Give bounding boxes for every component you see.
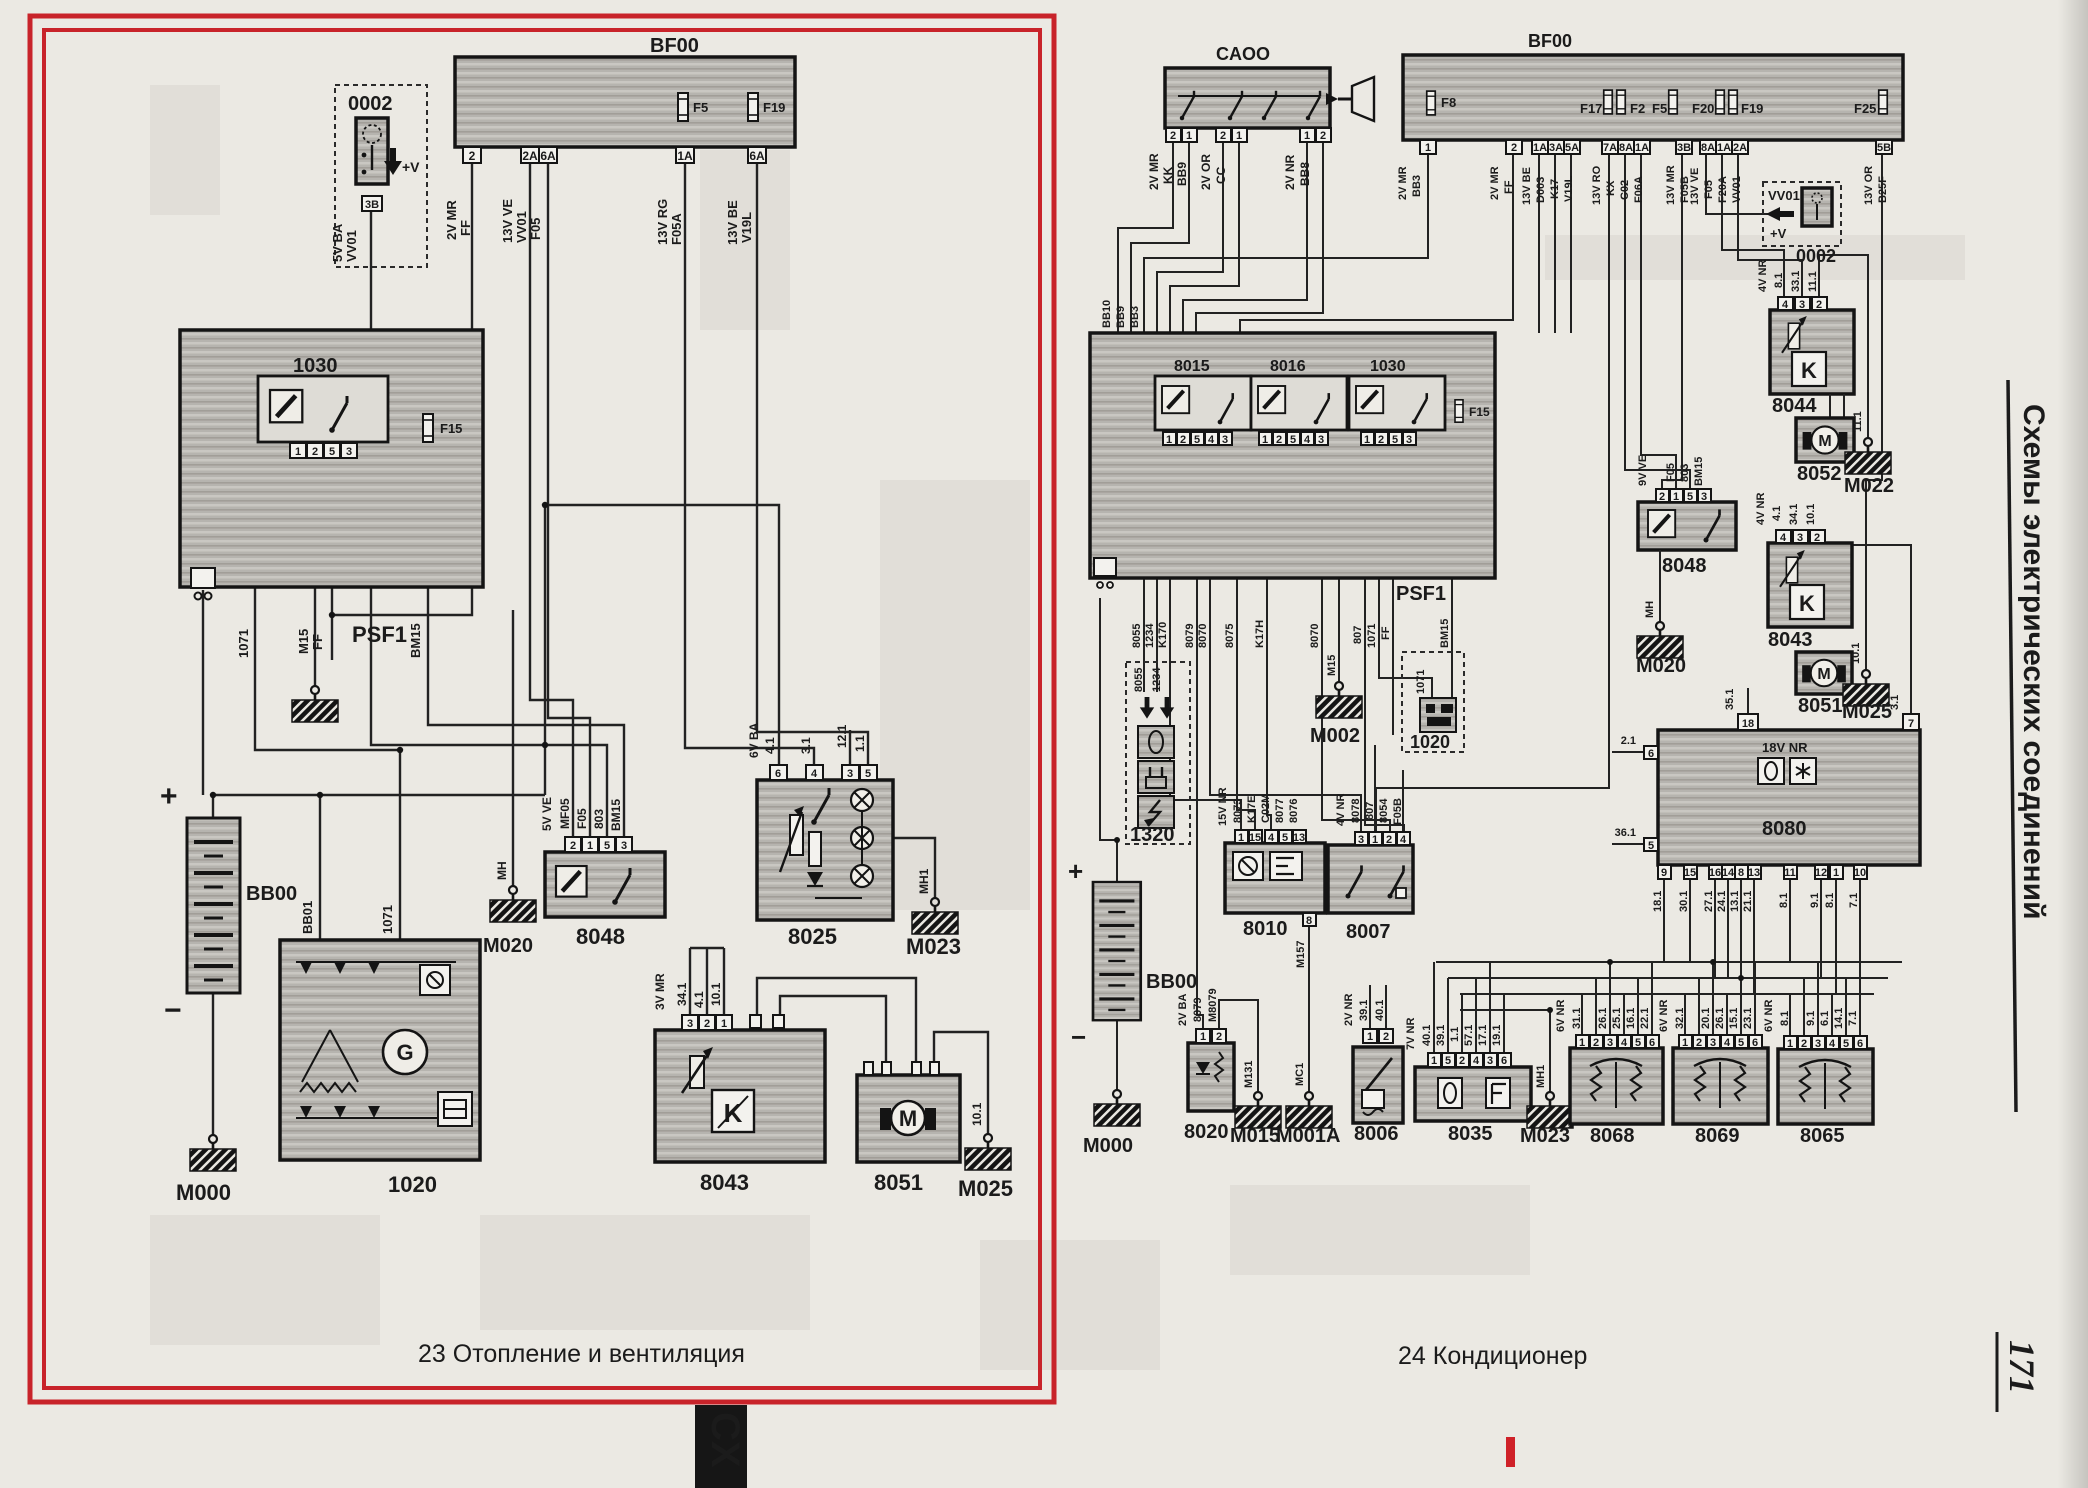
- wire-label: FF: [1503, 180, 1515, 194]
- unit-id-label: 8044: [1772, 395, 1817, 417]
- wire-label: 8076: [1288, 799, 1300, 823]
- unit-id-label: 8006: [1354, 1123, 1399, 1145]
- red-index-mark: [1506, 1437, 1515, 1467]
- wire-label: 34.1: [675, 982, 689, 1006]
- wire-label: MC1: [1294, 1063, 1306, 1086]
- ground-label: M023: [1520, 1125, 1570, 1147]
- unit-8051-motor: M 8051: [857, 1062, 960, 1195]
- pin-label: 5: [1635, 1037, 1641, 1049]
- generator-letter: G: [396, 1040, 413, 1065]
- wire-label: 1071: [1415, 670, 1427, 694]
- wire-label: 8077: [1274, 799, 1286, 823]
- wire-label: 34.1: [1788, 504, 1800, 525]
- wire-label: 8073: [1232, 799, 1244, 823]
- wire-label: 8078: [1350, 799, 1362, 823]
- wire-label: 8055: [1133, 668, 1145, 692]
- pin-label: 2: [1593, 1037, 1599, 1049]
- pin-label: 1: [1186, 130, 1192, 142]
- wire-label: 36.1: [1615, 827, 1636, 839]
- pin-label: 1: [587, 840, 593, 852]
- ground-label: M020: [483, 935, 533, 957]
- wire-label: 4V NR: [1335, 794, 1347, 826]
- unit-8006: 1 2 2V NR 39.1 40.1 8006: [1343, 994, 1403, 1145]
- wire-label: BB3: [1411, 175, 1423, 197]
- wire-label: 13V VE: [500, 199, 515, 243]
- wire-label: BB3: [1129, 306, 1141, 328]
- wire-label: 807: [1364, 802, 1376, 820]
- wire-label: MH1: [1535, 1065, 1547, 1088]
- wire-label: CC: [1214, 166, 1228, 184]
- wire-label: 2V NR: [1343, 994, 1355, 1026]
- pin-label: 1: [1166, 434, 1172, 446]
- page-edge-shadow: [2058, 0, 2088, 1488]
- ground-label: M000: [176, 1180, 231, 1205]
- unit-id-label: BF00: [1528, 31, 1572, 51]
- wire-label: 8070: [1309, 624, 1321, 648]
- wire-label: M8079: [1207, 988, 1219, 1022]
- pin-label: 4: [1829, 1038, 1836, 1050]
- pin-label: 1: [1367, 1031, 1373, 1043]
- unit-id-label: 8020: [1184, 1121, 1229, 1143]
- wire-label: K17H: [1254, 620, 1266, 648]
- wire-label: 8054: [1378, 798, 1390, 823]
- wire-label: 3V MR: [653, 973, 667, 1010]
- wire-label: 25.1: [1611, 1008, 1623, 1029]
- unit-1020-right: 1071 1020: [1402, 652, 1464, 752]
- pin-label: 1: [1579, 1037, 1585, 1049]
- battery-plus: +: [1068, 856, 1083, 886]
- wire-label: BB10: [1101, 300, 1113, 328]
- wire-label: V19L: [1563, 175, 1575, 202]
- pin-label: 5: [1648, 840, 1654, 852]
- wire-label: K17E: [1246, 795, 1258, 823]
- wire-label: 2V BA: [1177, 994, 1189, 1026]
- pin-label: 1: [1372, 834, 1378, 846]
- wire-label: 1234: [1144, 623, 1156, 648]
- fuse-label: F5: [1652, 101, 1667, 116]
- pin-label: 7: [1908, 718, 1914, 730]
- unit-8007: 3 1 2 4 4V NR 8078 807 8054 F05B 8007: [1328, 794, 1413, 943]
- pin-label: 5: [1194, 434, 1200, 446]
- fuse-label: F15: [1469, 405, 1490, 419]
- wire-label: 6V NR: [1555, 1000, 1567, 1032]
- wire-label: B25F: [1877, 176, 1889, 203]
- pin-label: 1: [295, 446, 301, 458]
- fuse-label: F15: [440, 421, 462, 436]
- wire-label: C02M: [1260, 794, 1272, 823]
- ground-label: M020: [1636, 655, 1686, 677]
- unit-8035: 1 5 2 4 3 6 7V NR 40.1 39.1 1.1 57.1 17.…: [1405, 1018, 1531, 1145]
- pin-label: 6: [1857, 1038, 1863, 1050]
- wire-label: 7.1: [1848, 893, 1860, 908]
- pin-label: 1A: [1717, 142, 1731, 154]
- pin-label: 7A: [1603, 142, 1617, 154]
- pin-label: 2: [1220, 130, 1226, 142]
- wire-label: 2V MR: [1489, 166, 1501, 200]
- pin-label: 4: [1780, 532, 1787, 544]
- wire-label: 6V BA: [747, 722, 761, 758]
- pin-label: 2: [1696, 1037, 1702, 1049]
- sidebar-title: Схемы электрических соединений: [2017, 404, 2050, 920]
- wire-label: 10.1: [1850, 643, 1862, 664]
- cx-tab: CX: [695, 1405, 747, 1488]
- pin-label: 1: [1262, 434, 1268, 446]
- wire-label: 2V OR: [1199, 154, 1213, 190]
- pin-label: 2: [1459, 1055, 1465, 1067]
- pin-label: 2: [1386, 834, 1392, 846]
- ground-label: M002: [1310, 725, 1360, 747]
- ground-m023-right-symbol: [1527, 1092, 1573, 1128]
- wire-label: MH: [495, 861, 509, 880]
- pin-label: 6: [775, 768, 781, 780]
- ground-m15-symbol: [292, 686, 338, 722]
- wire-label: M157: [1295, 940, 1307, 968]
- wire-label: BB01: [300, 901, 315, 934]
- wire-label: 13V MR: [1665, 165, 1677, 205]
- caption-left: 23 Отопление и вентиляция: [418, 1340, 745, 1368]
- battery-minus: −: [164, 994, 182, 1027]
- pin-label: 3: [1799, 299, 1805, 311]
- pin-label: 3: [1815, 1038, 1821, 1050]
- wire-label: F06A: [1633, 176, 1645, 203]
- ground-label: M001A: [1276, 1125, 1340, 1147]
- wire-label: 35.1: [1724, 689, 1736, 710]
- ground-m001a-symbol: [1286, 1092, 1332, 1128]
- wire-label: 23.1: [1742, 1008, 1754, 1029]
- pin-label: 1: [721, 1018, 727, 1030]
- fuse-label: F20: [1692, 101, 1714, 116]
- wire-label: 6V NR: [1763, 1000, 1775, 1032]
- wire-label: 31.1: [1571, 1008, 1583, 1029]
- wire-label: 15.1: [1728, 1008, 1740, 1029]
- wire-label: 13V BE: [1521, 167, 1533, 205]
- wire-label: 2V MR: [1147, 153, 1161, 190]
- pin-label: 1: [1673, 491, 1679, 503]
- unit-1020-alternator: G 1020 BB01 1071: [280, 901, 480, 1197]
- pin-label: 2: [1659, 491, 1665, 503]
- ground-label: M023: [906, 934, 961, 959]
- wire-label: VV01: [514, 211, 529, 243]
- unit-id-label: 8068: [1590, 1125, 1635, 1147]
- wire-label: FF: [310, 634, 325, 650]
- wire-label: K17: [1549, 179, 1561, 199]
- wire-label: M15: [1326, 655, 1338, 676]
- unit-id-label: 8007: [1346, 921, 1391, 943]
- pin-label: 13: [1293, 832, 1305, 844]
- wire-label: 4.1: [763, 737, 777, 754]
- unit-id-label: 8052: [1797, 463, 1842, 485]
- unit-psf1-right: BB10 BB9 BB3 8015 1 2 5 4 3 8016 1 2 5 4…: [1090, 300, 1495, 676]
- pin-label: 4: [1208, 434, 1215, 446]
- pin-label: 1: [1304, 130, 1310, 142]
- wire-label: 2V MR: [444, 200, 459, 240]
- wire-label: 20.1: [1700, 1008, 1712, 1029]
- pin-label: 5: [1843, 1038, 1849, 1050]
- relay-id-label: 1030: [293, 355, 338, 377]
- unit-8043: 3 2 1 3V MR 34.1 4.1 10.1 K 8043: [653, 973, 825, 1195]
- pin-label: 4: [1400, 834, 1407, 846]
- pin-label: 6: [1501, 1055, 1507, 1067]
- wire-label: F20A: [1717, 176, 1729, 203]
- motor-letter: M: [899, 1106, 917, 1131]
- wire-label: 6V NR: [1658, 1000, 1670, 1032]
- wire-label: 8075: [1224, 624, 1236, 648]
- pin-label: 5B: [1877, 142, 1891, 154]
- voltage-label: 18V NR: [1762, 740, 1808, 755]
- unit-id-label: PSF1: [352, 622, 407, 647]
- plus-v-label: +V: [1770, 226, 1787, 241]
- pin-label: 1: [1238, 832, 1244, 844]
- wire-label: FF: [458, 220, 473, 236]
- pin-label: 18: [1742, 718, 1754, 730]
- cx-label: CX: [703, 1412, 747, 1468]
- ground-m020-symbol: [490, 886, 536, 922]
- pin-label: 2: [704, 1018, 710, 1030]
- pin-label: 6: [1752, 1037, 1758, 1049]
- pin-label: 4: [1782, 299, 1789, 311]
- wire-label: 803: [592, 809, 606, 829]
- pin-label: 3: [621, 840, 627, 852]
- ground-label: M025: [1842, 701, 1892, 723]
- wire-label: 27.1: [1703, 891, 1715, 912]
- relay-id-label: 8015: [1174, 358, 1210, 375]
- pin-label: 2: [469, 149, 476, 163]
- pin-label: 1A: [1635, 142, 1649, 154]
- unit-id-label: CAOO: [1216, 44, 1270, 64]
- pin-label: 1: [1364, 434, 1370, 446]
- wire-label: 2V MR: [1397, 166, 1409, 200]
- plus-v-label: +V: [402, 159, 420, 175]
- pin-label: 2: [1320, 130, 1326, 142]
- pin-label: 3: [1358, 834, 1364, 846]
- motor-letter: M: [1817, 666, 1830, 683]
- unit-id-label: 8048: [1662, 555, 1707, 577]
- wire-label: M15: [296, 629, 311, 654]
- battery-minus: −: [1071, 1022, 1086, 1052]
- caption-right: 24 Кондиционер: [1398, 1342, 1587, 1370]
- pin-label: 2: [1180, 434, 1186, 446]
- pin-label: 6: [1648, 748, 1654, 760]
- wire-label: BM15: [1439, 619, 1451, 648]
- wire-label: 1071: [1366, 624, 1378, 648]
- unit-1320: 8055 1234 1320: [1126, 662, 1190, 846]
- unit-id-label: 8051: [1798, 695, 1843, 717]
- pin-label: 4: [1268, 832, 1275, 844]
- pin-label: 4: [1724, 1037, 1731, 1049]
- pin-label: 1: [1236, 130, 1242, 142]
- unit-id-label: 1020: [388, 1172, 437, 1197]
- pin-label: 2: [1383, 1031, 1389, 1043]
- wire-label: 14.1: [1833, 1008, 1845, 1029]
- unit-id-label: PSF1: [1396, 583, 1446, 605]
- wire-label: 3.1: [799, 737, 813, 754]
- wire-label: 8079: [1184, 624, 1196, 648]
- pin-label: 15: [1249, 832, 1261, 844]
- wire-label: 57.1: [1463, 1025, 1475, 1046]
- wire-label: 30.1: [1678, 891, 1690, 912]
- pin-label: 3: [1487, 1055, 1493, 1067]
- wire-label: 13V VE: [1689, 168, 1701, 205]
- wire-label: 10.1: [970, 1102, 984, 1126]
- wire-label: 8.1: [1779, 1011, 1791, 1026]
- unit-id-label: 8051: [874, 1170, 923, 1195]
- unit-8048-right: 2 1 5 3 9V VE F05 803 BM15 8048: [1637, 455, 1736, 622]
- wire-label: 24.1: [1716, 891, 1728, 912]
- pin-label: 8: [1738, 867, 1744, 879]
- wire-label: 9.1: [1809, 893, 1821, 908]
- ground-m015-symbol: [1235, 1092, 1281, 1128]
- pin-label: 5: [1738, 1037, 1744, 1049]
- pin-label: 9: [1661, 867, 1667, 879]
- k-letter: K: [1799, 591, 1815, 616]
- unit-0002: 0002 +V 3B 5V BA VV01: [330, 85, 427, 267]
- wire-label: 13V RO: [1591, 165, 1603, 205]
- wire-label: F05A: [669, 213, 684, 245]
- wire-label: 13V OR: [1863, 166, 1875, 205]
- wire-label: VV01: [344, 230, 359, 262]
- wire-label: 8.1: [1778, 893, 1790, 908]
- ground-label: M025: [958, 1176, 1013, 1201]
- fuse-label: F17: [1580, 101, 1602, 116]
- pin-label: 6A: [749, 149, 765, 163]
- scanned-manual-page: BF00 F5 F19 2 2A 6A 1A 6A 2V MR FF 13V V…: [0, 0, 2088, 1488]
- pin-label: 3: [1318, 434, 1324, 446]
- wire-label: 8.1: [1824, 893, 1836, 908]
- ground-m000-symbol: [1094, 1090, 1140, 1126]
- unit-battery-bb00: + − BB00: [160, 780, 297, 1027]
- pin-label: 5: [604, 840, 610, 852]
- unit-id-label: 1020: [1410, 732, 1450, 752]
- wire-label: 39.1: [1435, 1025, 1447, 1046]
- unit-id-label: 8043: [1768, 629, 1813, 651]
- relay-id-label: 8016: [1270, 358, 1306, 375]
- unit-id-label: BF00: [650, 35, 699, 57]
- pin-label: 4: [1473, 1055, 1480, 1067]
- wire-label: BB8: [1298, 162, 1312, 186]
- unit-id-label: 8035: [1448, 1123, 1493, 1145]
- wire-label: 1071: [380, 905, 395, 934]
- wire-label: 4.1: [1771, 506, 1783, 521]
- pin-label: 3: [1710, 1037, 1716, 1049]
- unit-8043-right: 4 3 2 4V NR 4.1 34.1 10.1 K 8043: [1755, 493, 1852, 651]
- wire-label: 8070: [1197, 624, 1209, 648]
- pin-label: 5: [1392, 434, 1398, 446]
- fuse-label: F2: [1630, 101, 1645, 116]
- pin-label: 3A: [1549, 142, 1563, 154]
- pin-label: 6A: [540, 149, 556, 163]
- wire-label: MH1: [917, 868, 931, 894]
- pin-label: 8: [1306, 915, 1312, 927]
- wire-label: 18.1: [1652, 891, 1664, 912]
- pin-label: 2: [1170, 130, 1176, 142]
- pin-label: 5: [865, 768, 871, 780]
- pin-label: 10: [1854, 867, 1866, 879]
- pin-label: 1A: [677, 149, 693, 163]
- pin-label: 15: [1684, 867, 1696, 879]
- wire-label: 807: [1352, 626, 1364, 644]
- wire-label: 4V NR: [1755, 493, 1767, 525]
- sidebar: Схемы электрических соединений 171: [1997, 380, 2050, 1412]
- ground-m020-symbol: [1637, 622, 1683, 658]
- pin-label: 1: [1682, 1037, 1688, 1049]
- fuse-label: F19: [1741, 101, 1763, 116]
- right-junction-dots: [1114, 837, 1744, 1013]
- wire-label: 11.1: [1807, 271, 1819, 292]
- wire-label: 9V VE: [1637, 455, 1649, 486]
- ground-label: M000: [1083, 1135, 1133, 1157]
- pin-label: 3: [687, 1018, 693, 1030]
- wire-label: BB9: [1175, 162, 1189, 186]
- wiring-diagram-canvas: BF00 F5 F19 2 2A 6A 1A 6A 2V MR FF 13V V…: [0, 0, 2088, 1488]
- unit-id-label: 8069: [1695, 1125, 1740, 1147]
- unit-id-label: 8048: [576, 924, 625, 949]
- unit-id-label: 8080: [1762, 818, 1807, 840]
- pin-label: 1: [1200, 1031, 1206, 1043]
- wire-label: BM15: [609, 799, 623, 831]
- pin-label: 3: [1797, 532, 1803, 544]
- wire-label: C02: [1619, 180, 1631, 200]
- pin-label: 3: [1607, 1037, 1613, 1049]
- pin-label: 2: [1814, 532, 1820, 544]
- pin-label: 2: [1816, 299, 1822, 311]
- wire-label: 1.1: [853, 735, 867, 752]
- wire-label: 4.1: [692, 991, 706, 1008]
- pin-label: 2: [1276, 434, 1282, 446]
- wire-label: 17.1: [1477, 1025, 1489, 1046]
- wire-label: 26.1: [1597, 1008, 1609, 1029]
- unit-8020: 1 2 2V BA 8079 M8079 8020: [1177, 988, 1234, 1143]
- pin-label: 5: [1290, 434, 1296, 446]
- wire-label: FF: [1380, 626, 1392, 640]
- pin-label: 3: [346, 446, 352, 458]
- wire-label: BM15: [1693, 457, 1705, 486]
- unit-bf00: BF00 F5 F19 2 2A 6A 1A 6A 2V MR FF 13V V…: [444, 35, 795, 245]
- wire-label: 7.1: [1847, 1011, 1859, 1026]
- pin-label: 4: [1621, 1037, 1628, 1049]
- wire-label: F05: [528, 218, 543, 240]
- fuse-label: F8: [1441, 95, 1456, 110]
- k-letter: K: [1801, 358, 1817, 383]
- pin-label: 5A: [1565, 142, 1579, 154]
- wire-label: 15V NR: [1217, 787, 1229, 826]
- unit-id-label: 0002: [1796, 246, 1836, 266]
- pin-label: 3: [1406, 434, 1412, 446]
- pin-label: 6: [1649, 1037, 1655, 1049]
- wire-label: KK: [1161, 166, 1175, 184]
- wire-label: 16.1: [1625, 1008, 1637, 1029]
- wire-label: 8.1: [1773, 273, 1785, 288]
- pin-label: 5: [1445, 1055, 1451, 1067]
- wire-label: 39.1: [1358, 1000, 1370, 1021]
- wire-label: 10.1: [709, 982, 723, 1006]
- pin-label: 2: [570, 840, 576, 852]
- wire-label: K170: [1157, 622, 1169, 648]
- pin-label: 3B: [365, 199, 379, 211]
- wire-label: 803: [1679, 464, 1691, 482]
- pin-label: 2: [1378, 434, 1384, 446]
- pin-label: 11: [1784, 867, 1796, 879]
- pin-label: 2A: [522, 149, 538, 163]
- pin-label: 3: [1222, 434, 1228, 446]
- pin-label: 8A: [1701, 142, 1715, 154]
- wire-label: 2.1: [1621, 735, 1636, 747]
- unit-8025: 6 4 3 5 6V BA 4.1 3.1 12.1 1.1 8025: [747, 722, 893, 949]
- wire-label: D003: [1535, 177, 1547, 203]
- pin-label: 4: [811, 768, 818, 780]
- wire-label: 2V NR: [1283, 154, 1297, 190]
- ground-m025-symbol: [965, 1134, 1011, 1170]
- wire-label: 26.1: [1714, 1008, 1726, 1029]
